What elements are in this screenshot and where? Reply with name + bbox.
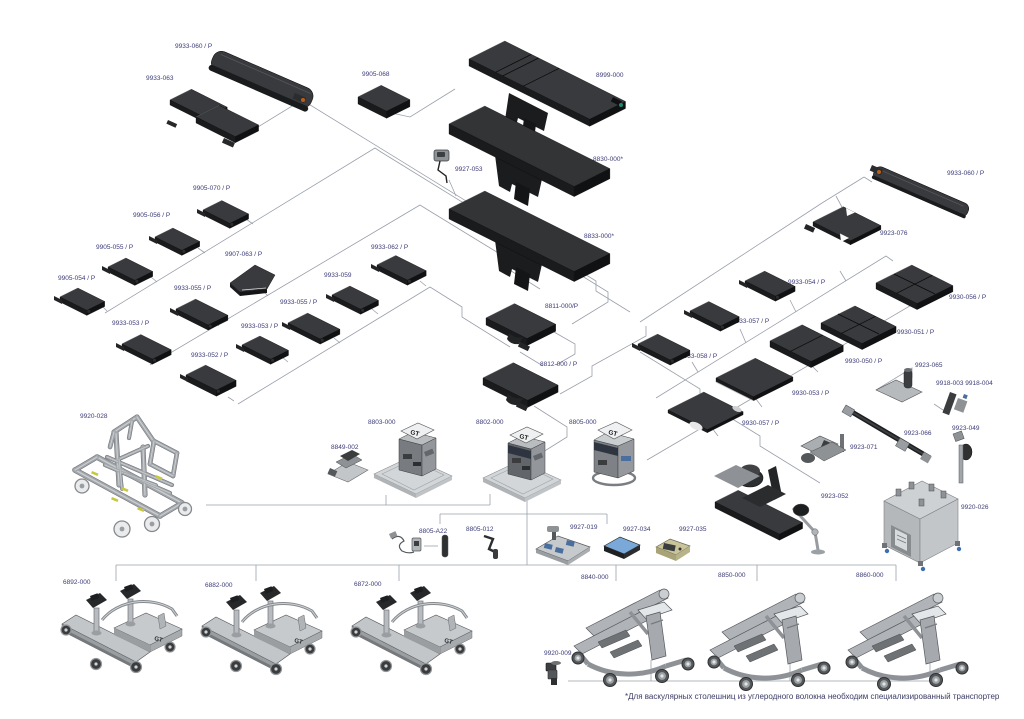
svg-text:8805-A22: 8805-A22 [419, 528, 448, 535]
svg-text:8802-000: 8802-000 [476, 419, 504, 426]
svg-text:8833-000*: 8833-000* [584, 233, 614, 240]
svg-text:9920-028: 9920-028 [80, 413, 108, 420]
svg-text:9933-059: 9933-059 [324, 272, 352, 279]
svg-text:9927-053: 9927-053 [455, 166, 483, 173]
svg-text:8803-000: 8803-000 [368, 419, 396, 426]
svg-text:8999-000: 8999-000 [596, 72, 624, 79]
svg-text:9905-056 / P: 9905-056 / P [133, 212, 170, 219]
svg-text:9930-053 / P: 9930-053 / P [792, 390, 829, 397]
svg-text:9933-055 / P: 9933-055 / P [280, 299, 317, 306]
svg-text:8840-000: 8840-000 [581, 574, 609, 581]
svg-text:9920-009: 9920-009 [544, 650, 572, 657]
svg-text:6872-000: 6872-000 [354, 581, 382, 588]
svg-text:8811-000/P: 8811-000/P [545, 303, 578, 310]
svg-text:9930-056 / P: 9930-056 / P [949, 294, 986, 301]
svg-text:9905-068: 9905-068 [362, 71, 390, 78]
svg-text:9905-054 / P: 9905-054 / P [58, 275, 95, 282]
svg-text:6882-000: 6882-000 [205, 582, 233, 589]
svg-text:9933-054 / P: 9933-054 / P [788, 279, 825, 286]
svg-text:8860-000: 8860-000 [856, 572, 884, 579]
svg-text:9930-057 / P: 9930-057 / P [742, 420, 779, 427]
svg-text:9933-053 / P: 9933-053 / P [112, 320, 149, 327]
svg-text:9923-049: 9923-049 [952, 425, 980, 432]
svg-text:8805-000: 8805-000 [569, 419, 597, 426]
svg-text:8849-002: 8849-002 [331, 444, 359, 451]
svg-text:9927-019: 9927-019 [570, 524, 598, 531]
svg-text:9930-050 / P: 9930-050 / P [845, 358, 882, 365]
svg-text:9920-026: 9920-026 [961, 504, 989, 511]
svg-text:9930-051 / P: 9930-051 / P [897, 329, 934, 336]
svg-text:9923-052: 9923-052 [821, 493, 849, 500]
svg-text:8830-000*: 8830-000* [593, 156, 623, 163]
svg-text:9933-060 / P: 9933-060 / P [947, 170, 984, 177]
svg-text:9927-035: 9927-035 [679, 526, 707, 533]
svg-text:9933-052 / P: 9933-052 / P [191, 352, 228, 359]
svg-text:8850-000: 8850-000 [718, 572, 746, 579]
svg-text:9923-076: 9923-076 [880, 230, 908, 237]
svg-text:9918-003 9918-004: 9918-003 9918-004 [936, 380, 993, 387]
svg-text:9905-070 / P: 9905-070 / P [193, 185, 230, 192]
svg-text:9933-055 / P: 9933-055 / P [174, 285, 211, 292]
svg-text:9923-066: 9923-066 [904, 430, 932, 437]
svg-text:9933-062 / P: 9933-062 / P [371, 244, 408, 251]
svg-text:8812-000 / P: 8812-000 / P [540, 361, 577, 368]
svg-text:9933-063: 9933-063 [146, 75, 174, 82]
svg-text:9923-071: 9923-071 [850, 444, 878, 451]
svg-text:9923-065: 9923-065 [915, 362, 943, 369]
svg-text:9933-053 / P: 9933-053 / P [241, 323, 278, 330]
svg-text:*Для васкулярных столешниц из: *Для васкулярных столешниц из углеродног… [625, 692, 1000, 701]
svg-text:6892-000: 6892-000 [63, 579, 91, 586]
svg-text:8805-012: 8805-012 [466, 526, 494, 533]
svg-text:9933-060 / P: 9933-060 / P [175, 43, 212, 50]
svg-text:9907-063 / P: 9907-063 / P [225, 251, 262, 258]
svg-text:9905-055 / P: 9905-055 / P [96, 244, 133, 251]
svg-text:9927-034: 9927-034 [623, 526, 651, 533]
